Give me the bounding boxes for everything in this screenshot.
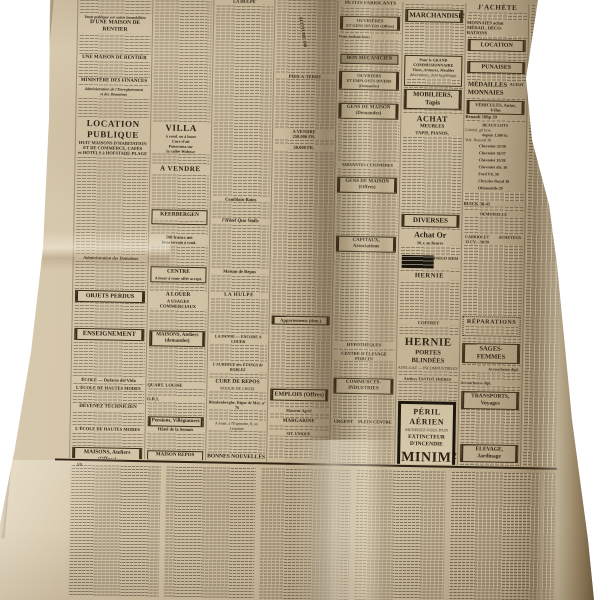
section-header-gens-maison-off: GENS DE MAISON (Offres) — [337, 177, 397, 194]
headline-acheteur: ACHETEUR — [498, 235, 521, 240]
classifieds-column-2: VILLA à vend. ou à louer Cure d'air Pano… — [146, 0, 212, 460]
classifieds-column-5: PETITS FABRICANTS OUVRIÈRES ET GENS DIVE… — [331, 1, 401, 464]
body-text-block — [464, 326, 518, 335]
ouvriers-line2: ET EMPLOYÉS DIVERS (Demandes) — [343, 78, 395, 89]
body-text-block — [151, 173, 210, 210]
classifieds-column-4: PIED-A-TERRE A VENDRE 250.000 FR. 50.000… — [268, 0, 336, 463]
body-text-block — [75, 155, 149, 256]
minimax-peril-aerien: PÉRIL AÉRIEN — [402, 407, 452, 428]
body-text-block — [148, 308, 206, 331]
section-header-punaises: PUNAISES — [467, 61, 525, 74]
section-header-maisons-ateliers-dem: MAISONS, Ateliers (demandes) — [149, 330, 205, 347]
grand-comm-line3: décorations, dont hygiénique — [406, 72, 460, 78]
jeweler-logo-box — [402, 255, 434, 269]
body-text-block — [397, 381, 457, 402]
body-text-block — [331, 424, 394, 464]
feuilleton-column — [541, 473, 555, 600]
classifieds-column-8 — [522, 4, 564, 467]
headline-hernie-2: HERNIE — [398, 335, 458, 350]
body-text-block — [72, 390, 144, 405]
body-text-block — [338, 90, 400, 104]
headline-maison-rentier: D'UNE MAISON DE RENTIER — [79, 19, 151, 34]
body-text-block — [399, 280, 460, 321]
body-text-block — [332, 394, 394, 420]
body-text-block — [271, 149, 334, 316]
section-header-gens-maison-dem: GENS DE MAISON (Demandes) — [338, 103, 398, 120]
section-header-elevage: ÉLEVAGE, Jardinage — [460, 444, 518, 463]
feuilleton-column — [164, 467, 256, 600]
body-text-block — [147, 346, 206, 383]
body-text-block — [401, 135, 462, 215]
body-text-block — [212, 3, 274, 197]
body-text-block — [211, 224, 270, 269]
minimax-munissez: MUNISSEZ-VOUS D'UN — [402, 427, 452, 433]
body-text-block — [522, 4, 564, 467]
ad-box-minimax: PÉRIL AÉRIEN MUNISSEZ-VOUS D'UN EXTINCTE… — [397, 401, 457, 465]
logo-frigo-row: FRIGO SIEM — [400, 255, 460, 269]
car-list: Chevrolet 35/38 Chevrolet 36/37 Chevrole… — [464, 142, 525, 192]
newspaper-sheet: Vente publique sur saisie immobilière D'… — [0, 0, 600, 600]
body-text-block — [207, 430, 265, 454]
body-text-block — [335, 193, 398, 237]
body-text-block — [274, 79, 335, 130]
body-text-block — [73, 340, 146, 378]
body-text-block — [459, 409, 520, 445]
section-header-commerces-industries: COMMERCES-INDUSTRIES — [333, 378, 393, 395]
body-text-block — [72, 410, 144, 427]
body-text-block — [78, 33, 150, 56]
classifieds-column-3: LA HULPE Comblain-Bains l'Hôtel Quo Vadi… — [207, 0, 273, 461]
feuilleton-column — [259, 468, 351, 600]
headline-keerbergen: KEERBERGEN — [153, 211, 205, 219]
section-header-ouvrieres: OUVRIÈRES ET GENS DIVERS (Offres) — [340, 16, 400, 31]
body-text-block — [146, 431, 204, 451]
body-text-block — [77, 96, 149, 119]
body-text-block — [210, 273, 268, 293]
section-header-transports: TRANSPORTS, Voyages — [461, 391, 519, 410]
body-text-block — [333, 252, 397, 343]
section-header-marchandises: MARCHANDISES — [405, 9, 463, 23]
body-text-block — [269, 324, 330, 389]
classifieds-column-1: Vente publique sur saisie immobilière D'… — [71, 0, 151, 459]
body-text-block — [152, 0, 212, 123]
body-text-block — [71, 431, 143, 448]
section-header-maisons-ateliers-offres: MAISONS, Ateliers (Offres) — [72, 447, 142, 459]
body-text-block — [406, 77, 460, 85]
feuilleton-column — [353, 470, 445, 600]
ad-box-reparations: RÉPARATIONS — [462, 316, 520, 337]
body-text-block — [404, 22, 465, 56]
body-text-block — [74, 260, 147, 291]
medailles-row: MÉDAILLES MONNAIES ACHAT — [466, 81, 526, 98]
body-text-block — [463, 216, 523, 235]
body-text-block — [147, 401, 205, 417]
ad-box-maison-repos: MAISON REPOS — [147, 450, 203, 460]
section-header-capitaux: CAPITAUX, Associations — [336, 236, 396, 253]
classifieds-column-7: J'ACHÈTE MONNAIES achat MÉDAIL. DÉCO- RA… — [459, 3, 527, 466]
headline-location-publique: LOCATION PUBLIQUE — [77, 118, 149, 141]
body-text-block — [78, 61, 150, 79]
section-header-ouvriers: OUVRIERS ET EMPLOYÉS DIVERS (Demandes) — [339, 71, 399, 91]
body-text-block — [209, 343, 267, 362]
body-text-block — [79, 0, 151, 15]
section-header-location: LOCATION — [468, 39, 526, 52]
body-text-block — [333, 361, 395, 379]
body-text-block — [150, 244, 208, 267]
page-content: Vente publique sur saisie immobilière D'… — [0, 0, 600, 600]
cabriolet-stack: CABRIOLET 12 CV. - 38/39 — [465, 234, 489, 244]
ad-box-keerbergen: KEERBERGEN — [151, 209, 207, 225]
feuilleton-column — [448, 472, 540, 600]
section-header-mobiliers: MOBILIERS, Tapis — [404, 89, 462, 110]
centre-sub: A louer à toute offre accept. — [152, 275, 204, 281]
body-text-block — [73, 302, 145, 329]
section-header-vehicules: VÉHICULES, Autos, Vélos — [466, 100, 524, 115]
photo-backdrop: Vente publique sur saisie immobilière D'… — [0, 0, 600, 600]
body-text-block — [268, 435, 328, 459]
ad-box-grand-commissionnaire: Pour le GRAND COMMISSIONNAIRE Vieux, Arm… — [404, 55, 463, 87]
ad-box-centre: CENTRE A louer à toute offre accept. — [150, 266, 206, 283]
section-header-emplois: EMPLOIS (Offres) — [270, 388, 328, 401]
minimax-brand: MINIMAX — [401, 450, 451, 465]
medailles-stack: MÉDAILLES MONNAIES — [468, 81, 507, 98]
classifieds-column-6: MARCHANDISES Pour le GRAND COMMISSIONNAI… — [396, 2, 464, 465]
body-text-block — [209, 298, 268, 334]
headline-portes-blindees: PORTES BLINDÉES — [398, 349, 458, 366]
section-header-sages-femmes: SAGES-FEMMES — [462, 343, 520, 364]
headline-achat-small: ACHAT — [510, 82, 524, 87]
body-text-block — [211, 201, 269, 219]
headline-reparations: RÉPARATIONS — [465, 318, 519, 327]
body-text-block — [337, 119, 400, 163]
body-text-block — [462, 244, 523, 317]
ouvrieres-line2: ET GENS DIVERS (Offres) — [344, 23, 396, 29]
body-text-block — [339, 39, 401, 55]
minimax-extincteur: EXTINCTEUR D'INCENDIE — [401, 434, 451, 449]
headline-frigo-siem: FRIGO SIEM — [434, 255, 458, 260]
feuilleton-column — [69, 465, 161, 598]
section-header-diverses: DIVERSES — [401, 214, 459, 228]
